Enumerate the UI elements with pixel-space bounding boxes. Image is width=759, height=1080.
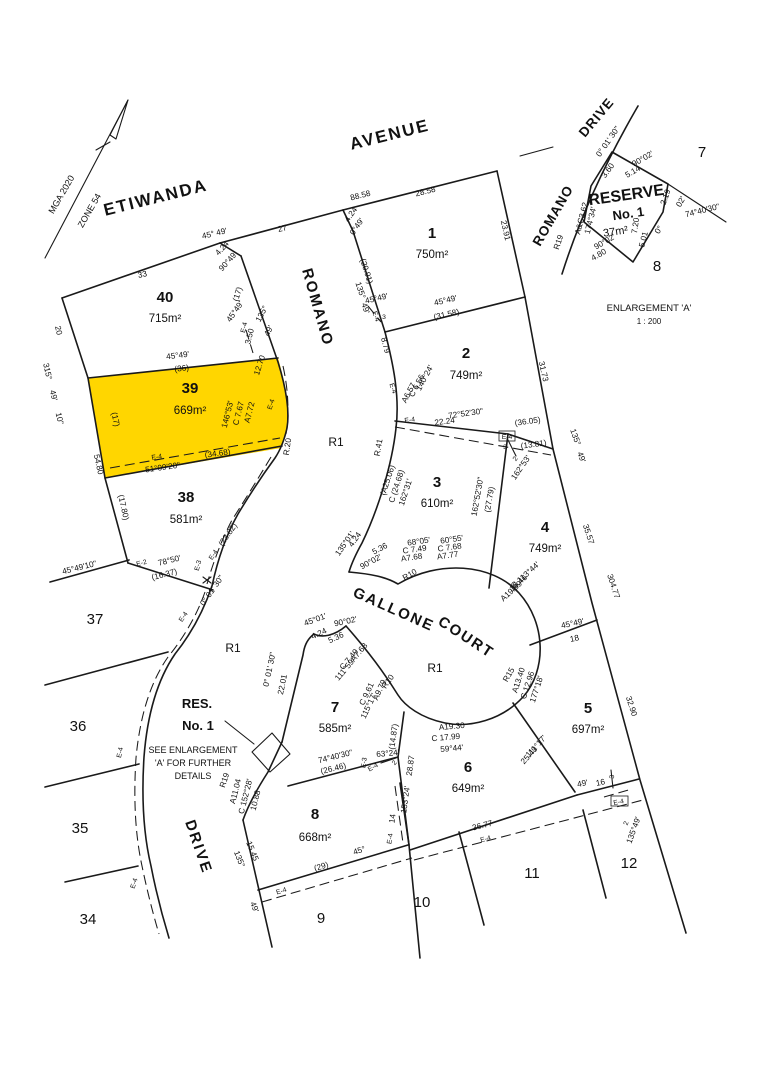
lot-area: 750m² [416,249,449,261]
enlargement-title: ENLARGEMENT 'A' [607,303,692,314]
dim-label: E-3 [360,757,368,769]
lot-number: 7 [331,699,339,716]
lot-number: 39 [182,380,199,397]
lot-number: 2 [462,345,470,362]
lot-area: 649m² [452,783,485,795]
lot-area: 749m² [450,370,483,382]
lot-number: 9 [317,910,325,927]
enl-lot-number: 8 [653,258,661,275]
reserve-title: RES. [182,696,212,711]
lot-number: 1 [428,225,436,242]
lot-number: 37 [87,611,104,628]
dim-label: E-4 [386,833,394,845]
enlargement-scale: 1 : 200 [637,317,662,326]
enl-lot-number: 7 [698,144,706,161]
lot-number: 12 [621,855,638,872]
dim-label: E-4 [404,416,416,424]
lot-number: 11 [524,865,540,882]
lot-area: 715m² [149,313,182,325]
reserve-note-line: 'A' FOR FURTHER [155,758,232,768]
zone-label-r1: R1 [225,641,241,655]
dim-label: 14 [387,813,397,824]
lot-area: 669m² [174,405,207,417]
lot-number: 34 [80,911,97,928]
lot-area: 697m² [572,724,605,736]
reserve-note-line: DETAILS [175,771,212,781]
lot-number: 40 [157,289,174,306]
survey-plan-page: ETIWANDA AVENUE ROMANO DRIVE GALLONE COU… [0,0,759,1080]
dim-label: (36) [174,363,190,374]
reserve-note-line: SEE ENLARGEMENT [148,745,238,755]
zone-label-r1: R1 [328,435,344,449]
lot-area: 749m² [529,543,562,555]
lot-number: 4 [541,519,550,536]
dim-label: E-4 [151,453,163,461]
reserve-number: No. 1 [182,718,214,733]
dim-label: E-4 [502,434,513,441]
lot-number: 3 [433,474,441,491]
lot-number: 35 [72,820,89,837]
lot-area: 668m² [299,832,332,844]
lot-number: 8 [311,806,319,823]
subdivision-plan-canvas: ETIWANDA AVENUE ROMANO DRIVE GALLONE COU… [0,0,759,1080]
lot-area: 610m² [421,498,454,510]
lot-number: 36 [70,718,87,735]
lot-number: 6 [464,759,472,776]
dim-label: 3 [382,314,386,321]
lot-number: 5 [584,700,592,717]
zone-label-r1: R1 [427,661,443,675]
lot-number: 10 [414,894,431,911]
dim-label: 3 [503,444,507,451]
lot-area: 581m² [170,514,203,526]
lot-number: 38 [178,489,195,506]
lot-area: 585m² [319,723,352,735]
